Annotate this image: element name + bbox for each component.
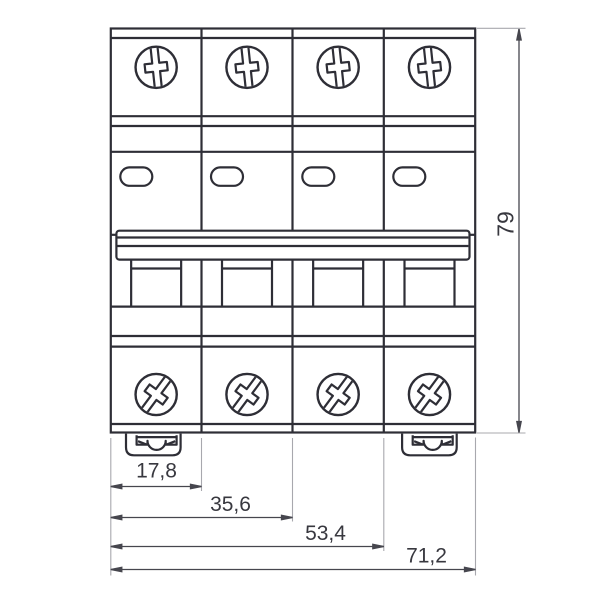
svg-text:35,6: 35,6 [210, 493, 251, 516]
svg-text:79: 79 [493, 211, 519, 237]
svg-text:53,4: 53,4 [305, 522, 346, 545]
svg-text:71,2: 71,2 [406, 545, 447, 568]
svg-text:17,8: 17,8 [136, 460, 177, 483]
